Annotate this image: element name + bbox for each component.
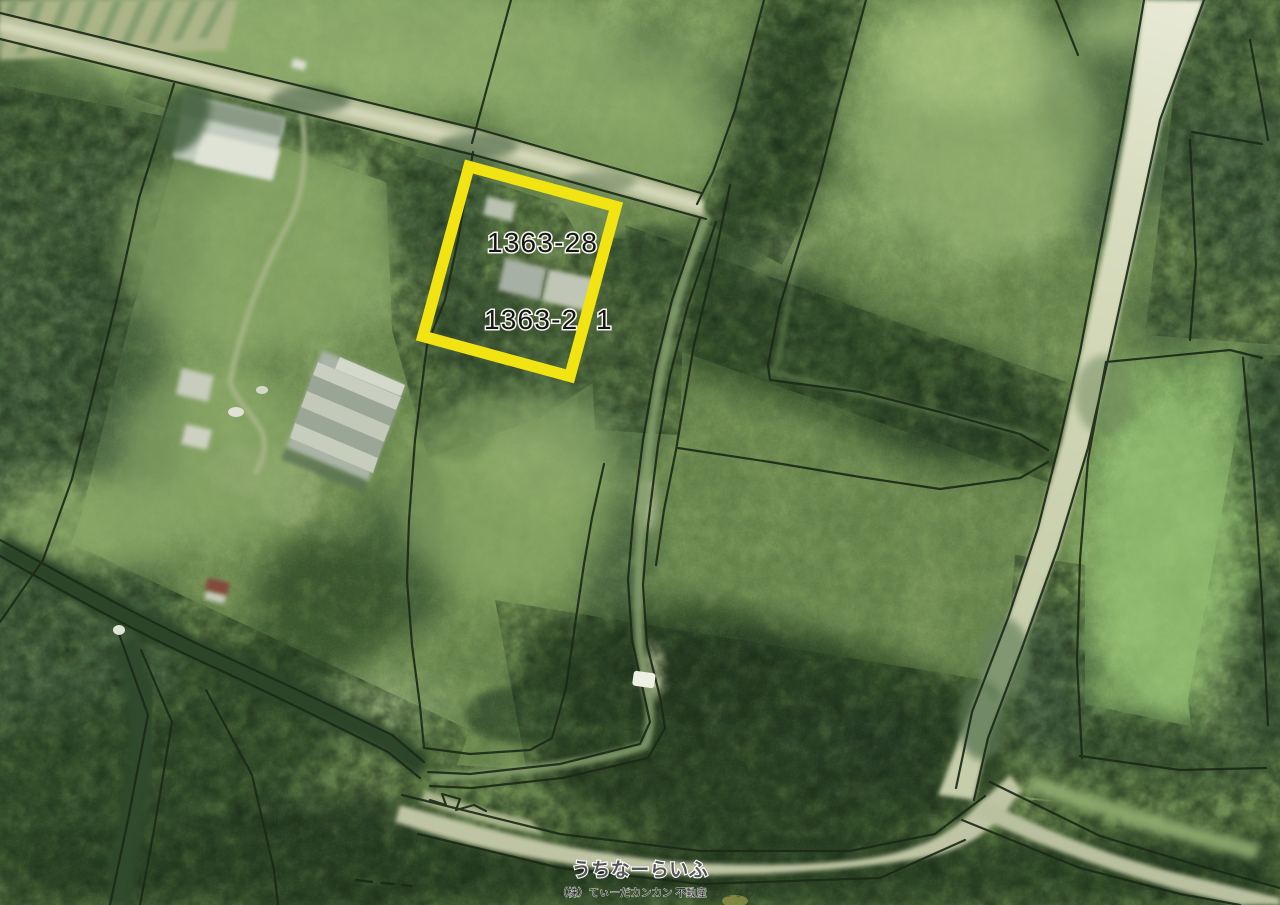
- svg-text:1363-2: 1363-2: [484, 304, 578, 335]
- svg-text:（株）てぃーだカンカン 不動産: （株）てぃーだカンカン 不動産: [557, 886, 707, 899]
- svg-text:うちなーらいふ: うちなーらいふ: [572, 859, 709, 881]
- svg-text:おきなわ: おきなわ: [712, 887, 754, 899]
- svg-text:1363-28: 1363-28: [487, 227, 598, 258]
- svg-text:1: 1: [596, 304, 612, 335]
